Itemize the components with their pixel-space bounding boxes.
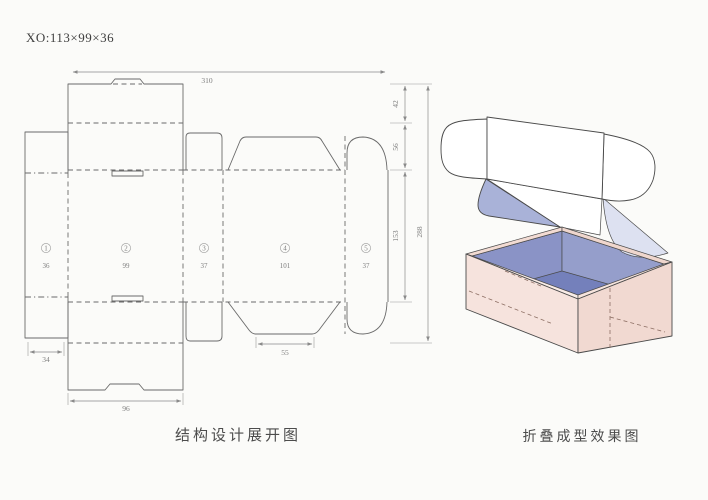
panel-1-num: 1: [44, 245, 48, 253]
panel-3-num: 3: [202, 245, 206, 253]
dim-flap-depth: 56: [391, 143, 400, 151]
dim-lid-depth: 42: [391, 100, 400, 108]
dieline-caption: 结构设计展开图: [118, 424, 358, 445]
dim-side-flap: 34: [42, 355, 50, 364]
panel-3-width: 37: [201, 262, 209, 270]
lid-flap-right: [602, 134, 655, 201]
panel-4-width: 101: [280, 262, 291, 270]
folded-box-rendering: [430, 95, 708, 385]
panel-2-num: 2: [124, 245, 128, 253]
dim-total-width: 310: [201, 76, 213, 85]
panel-5-width: 37: [363, 262, 371, 270]
lid-flap-left: [441, 119, 487, 179]
panel-4-num: 4: [283, 245, 287, 253]
dieline-fold-lines: [25, 84, 345, 384]
panel-1-width: 36: [43, 262, 51, 270]
dim-total-depth: 288: [415, 226, 424, 238]
render-caption: 折叠成型效果图: [462, 426, 702, 446]
panel-5-num: 5: [364, 245, 368, 253]
box-lid: [441, 117, 655, 201]
panel-labels: 1 36 2 99 3 37 4 101 5 37: [41, 243, 370, 270]
box-3d: [441, 117, 672, 353]
dim-body-depth: 153: [391, 230, 400, 242]
dim-tuck-flap: 55: [281, 348, 289, 357]
dieline-drawing: 1 36 2 99 3 37 4 101 5 37 310 42: [0, 0, 440, 470]
panel-2-width: 99: [123, 262, 131, 270]
dim-bottom-lid: 96: [122, 404, 130, 413]
packaging-design-sheet: XO:113×99×36: [0, 0, 708, 500]
